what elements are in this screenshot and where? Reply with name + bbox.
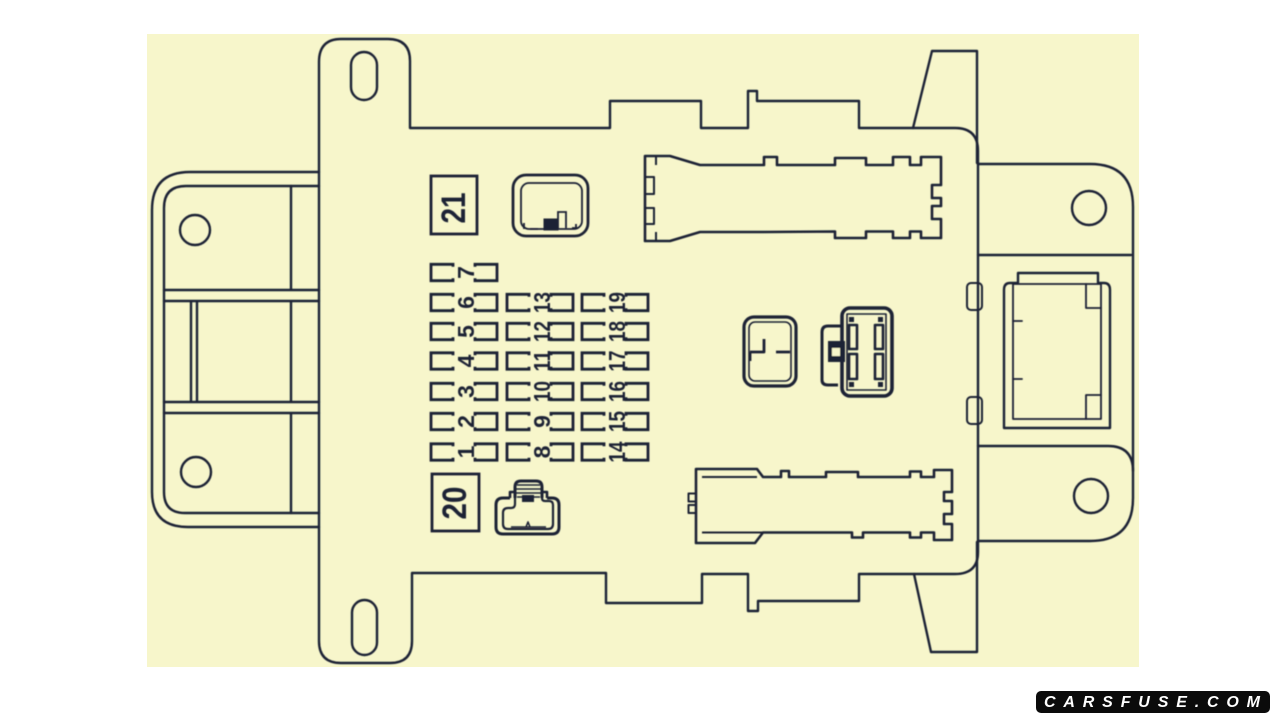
svg-text:13: 13 xyxy=(529,292,555,313)
svg-text:21: 21 xyxy=(435,193,473,224)
svg-text:7: 7 xyxy=(453,266,479,279)
svg-text:12: 12 xyxy=(529,321,555,342)
svg-text:6: 6 xyxy=(453,296,479,309)
svg-text:1: 1 xyxy=(453,445,479,458)
svg-text:2: 2 xyxy=(453,415,479,428)
svg-text:19: 19 xyxy=(604,292,630,313)
svg-text:10: 10 xyxy=(529,381,555,402)
svg-text:20: 20 xyxy=(436,487,474,520)
svg-text:18: 18 xyxy=(604,321,630,342)
svg-text:16: 16 xyxy=(604,381,630,402)
svg-text:5: 5 xyxy=(453,325,479,338)
svg-text:9: 9 xyxy=(529,415,555,428)
svg-text:15: 15 xyxy=(604,411,630,432)
svg-text:3: 3 xyxy=(453,385,479,398)
svg-text:17: 17 xyxy=(604,351,630,372)
svg-text:4: 4 xyxy=(453,354,479,367)
svg-text:14: 14 xyxy=(604,441,630,462)
svg-text:8: 8 xyxy=(529,445,555,458)
svg-text:11: 11 xyxy=(529,350,555,371)
